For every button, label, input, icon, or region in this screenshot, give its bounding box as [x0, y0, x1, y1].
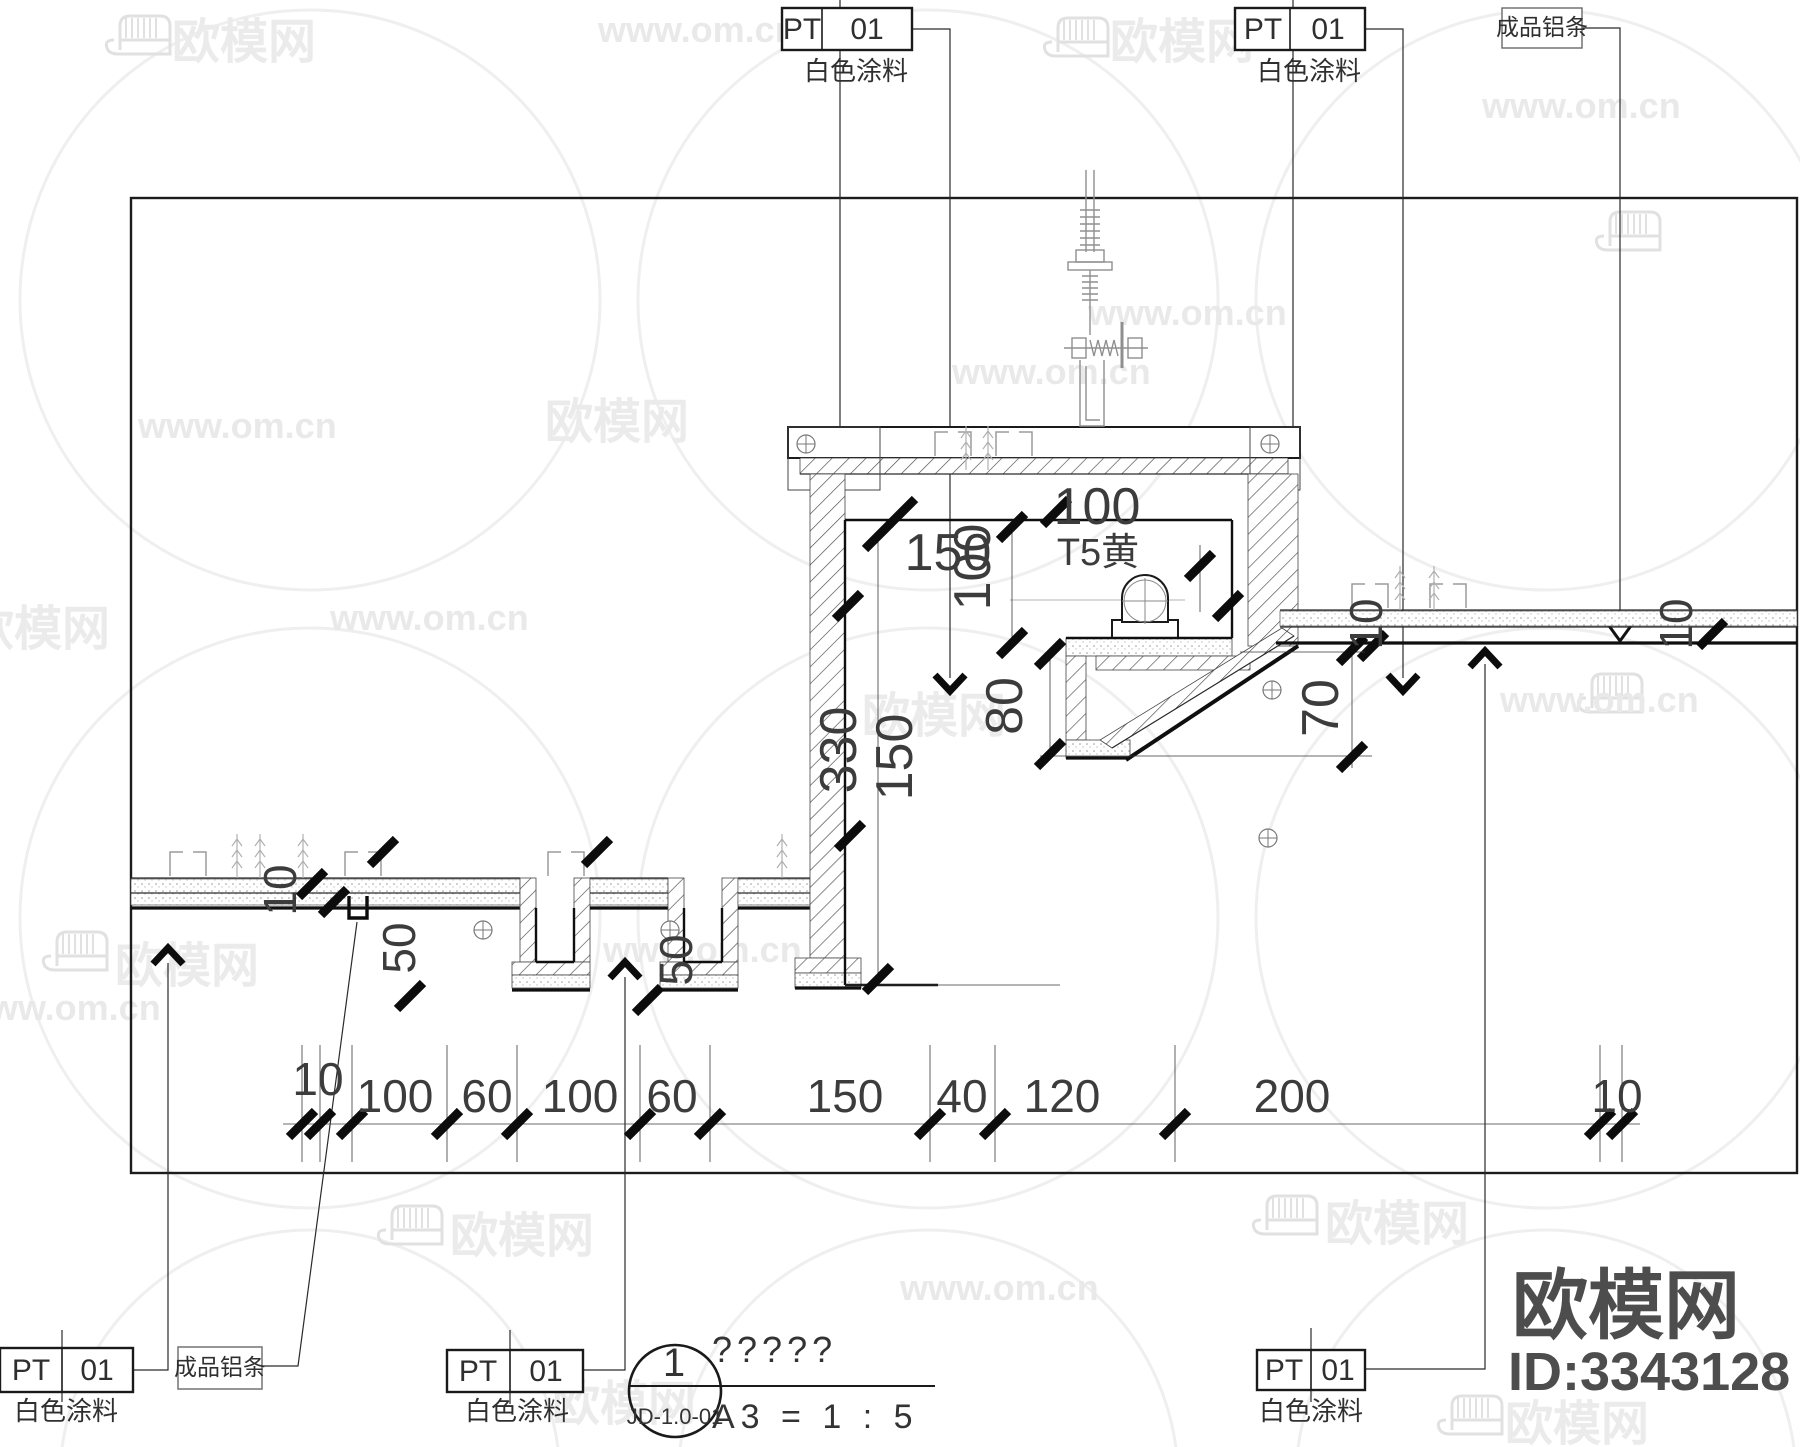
- chain-dim: 200: [1254, 1070, 1331, 1122]
- dim-10-right2-rotated: 10: [1650, 598, 1702, 649]
- pt-code: PT: [459, 1355, 497, 1388]
- sofa-watermark-icon: [106, 16, 170, 54]
- dim-70-rotated: 70: [1292, 679, 1350, 737]
- brand-watermark: 欧模网: [172, 16, 316, 69]
- url-watermark: www.om.cn: [899, 1267, 1099, 1308]
- aluminum-strip-label: 成品铝条: [1496, 14, 1588, 40]
- chain-dim: 120: [1024, 1070, 1101, 1122]
- dim-330-rotated: 330: [810, 707, 868, 794]
- ceiling-section-drawing: 欧模网 欧模网 欧模网 欧模网 欧模网 欧模网 欧模网 欧模网 欧模网 欧模网 …: [0, 0, 1800, 1447]
- title-block: 1 JD-1.0-01 ????? A3 = 1 : 5: [627, 1329, 935, 1437]
- scale-text: A3 = 1 : 5: [712, 1398, 919, 1436]
- dim-10-left-rotated: 10: [254, 864, 306, 915]
- lamp-type-label: T5黄: [1057, 532, 1139, 574]
- url-watermark: www.om.cn: [1499, 679, 1699, 720]
- site-brand: 欧模网: [1512, 1264, 1740, 1349]
- chain-dim: 60: [646, 1070, 697, 1122]
- dim-150-rotated: 150: [866, 714, 924, 801]
- chain-dim: 10: [292, 1053, 343, 1105]
- pt-number: 01: [80, 1354, 113, 1387]
- chain-dim: 150: [807, 1070, 884, 1122]
- url-watermark: www.om.cn: [1481, 85, 1681, 126]
- sofa-watermark-icon: [43, 932, 107, 970]
- bottom-dimension-chain: 10 100 60 100 60 150 40 120 200 10: [283, 1045, 1643, 1162]
- pt-tag-bottom-right: PT 01 白色涂料: [1257, 1328, 1365, 1426]
- dim-100-rotated: 100: [944, 524, 1002, 611]
- sofa-watermark-icon: [1596, 212, 1660, 250]
- chain-dim: 10: [1591, 1070, 1642, 1122]
- pt-number: 01: [529, 1355, 562, 1388]
- pt-number: 01: [1321, 1354, 1354, 1387]
- paint-label: 白色涂料: [1259, 1396, 1363, 1426]
- alu-tag-bottom: 成品铝条: [174, 1347, 266, 1389]
- brand-watermark: 欧模网: [450, 1210, 594, 1263]
- brand-watermark: 欧模网: [1110, 16, 1254, 69]
- chain-dim: 60: [461, 1070, 512, 1122]
- url-watermark: www.om.cn: [597, 9, 797, 50]
- pt-number: 01: [850, 13, 883, 46]
- pt-tag-bottom-middle: PT 01 白色涂料: [447, 1330, 583, 1426]
- dim-50-rotated: 50: [373, 922, 425, 973]
- paint-label: 白色涂料: [465, 1396, 569, 1426]
- chain-dim: 100: [542, 1070, 619, 1122]
- sofa-watermark-icon: [1438, 1396, 1502, 1434]
- url-watermark: www.om.cn: [329, 597, 529, 638]
- detail-number: 1: [663, 1341, 685, 1385]
- site-id: ID:3343128: [1508, 1342, 1790, 1402]
- dim-80-rotated: 80: [976, 677, 1034, 735]
- pt-tag-bottom-left: PT 01 白色涂料: [0, 1330, 133, 1426]
- brand-watermark: 欧模网: [545, 396, 689, 449]
- drawing-title: ?????: [712, 1329, 837, 1370]
- aluminum-strip-label: 成品铝条: [174, 1354, 266, 1380]
- chain-dim: 100: [357, 1070, 434, 1122]
- pt-number: 01: [1311, 13, 1344, 46]
- url-watermark: www.om.cn: [137, 405, 337, 446]
- cove-wedge: [1066, 628, 1298, 760]
- sofa-watermark-icon: [378, 1206, 442, 1244]
- paint-label: 白色涂料: [1257, 56, 1361, 86]
- sheet-code: JD-1.0-01: [627, 1404, 724, 1429]
- pt-tag-top-right: PT 01 白色涂料: [1235, 8, 1365, 86]
- paint-label: 白色涂料: [14, 1396, 118, 1426]
- alu-tag-top: 成品铝条: [1496, 8, 1588, 48]
- dim-10-right-rotated: 10: [1340, 598, 1392, 649]
- url-watermark: www.om.cn: [1087, 292, 1287, 333]
- sofa-watermark-icon: [1253, 1196, 1317, 1234]
- leader-lines: [133, 0, 1633, 1370]
- cad-ceiling-detail-screenshot: 欧模网 欧模网 欧模网 欧模网 欧模网 欧模网 欧模网 欧模网 欧模网 欧模网 …: [0, 0, 1800, 1447]
- brand-watermark: 欧模网: [115, 940, 259, 993]
- pt-code: PT: [1265, 1354, 1303, 1387]
- url-watermark: www.om.cn: [0, 987, 161, 1028]
- t5-lamp-symbol: [1010, 575, 1185, 640]
- pt-code: PT: [12, 1354, 50, 1387]
- dim-50b-rotated: 50: [650, 934, 702, 985]
- chain-dim: 40: [936, 1070, 987, 1122]
- brand-watermark: 欧模网: [1325, 1198, 1469, 1251]
- pt-code: PT: [783, 13, 821, 46]
- dim-100-lamp: 100: [1054, 478, 1141, 536]
- paint-label: 白色涂料: [804, 56, 908, 86]
- brand-watermark: 欧模网: [1505, 1398, 1649, 1447]
- pt-code: PT: [1244, 13, 1282, 46]
- brand-watermark: 欧模网: [0, 603, 110, 656]
- pt-tag-top-left: PT 01 白色涂料: [782, 8, 912, 86]
